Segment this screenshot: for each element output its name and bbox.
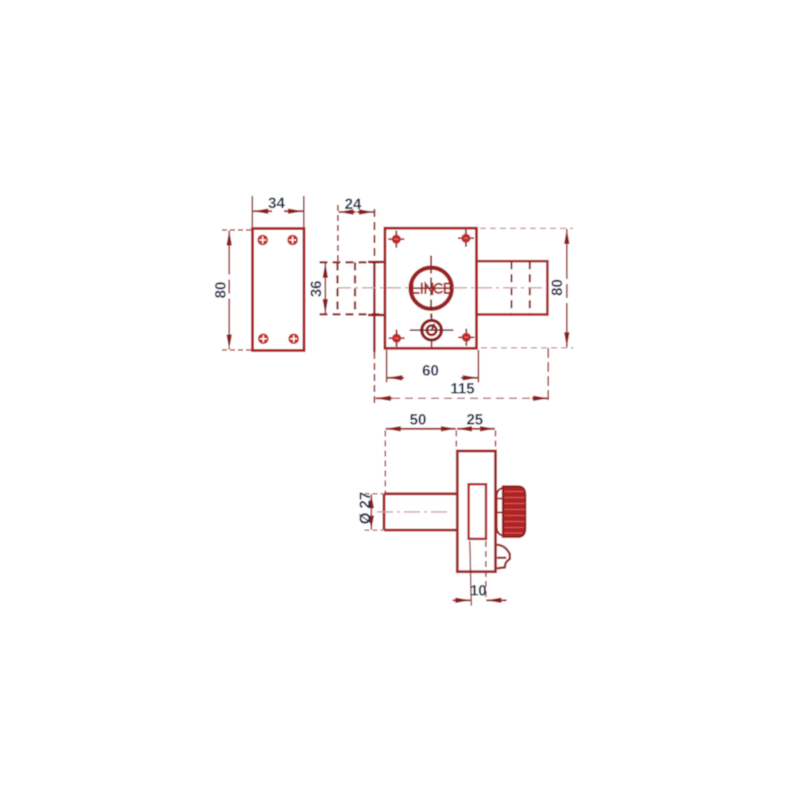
svg-text:36: 36 [308,280,325,297]
svg-text:60: 60 [422,363,439,380]
svg-text:Ø 27: Ø 27 [357,492,374,525]
svg-text:10: 10 [470,582,487,599]
svg-text:115: 115 [450,381,474,398]
svg-text:25: 25 [466,411,483,428]
svg-text:34: 34 [268,195,285,212]
svg-text:80: 80 [213,282,230,299]
svg-text:24: 24 [345,196,362,213]
svg-text:50: 50 [410,412,427,429]
svg-text:80: 80 [549,279,566,296]
